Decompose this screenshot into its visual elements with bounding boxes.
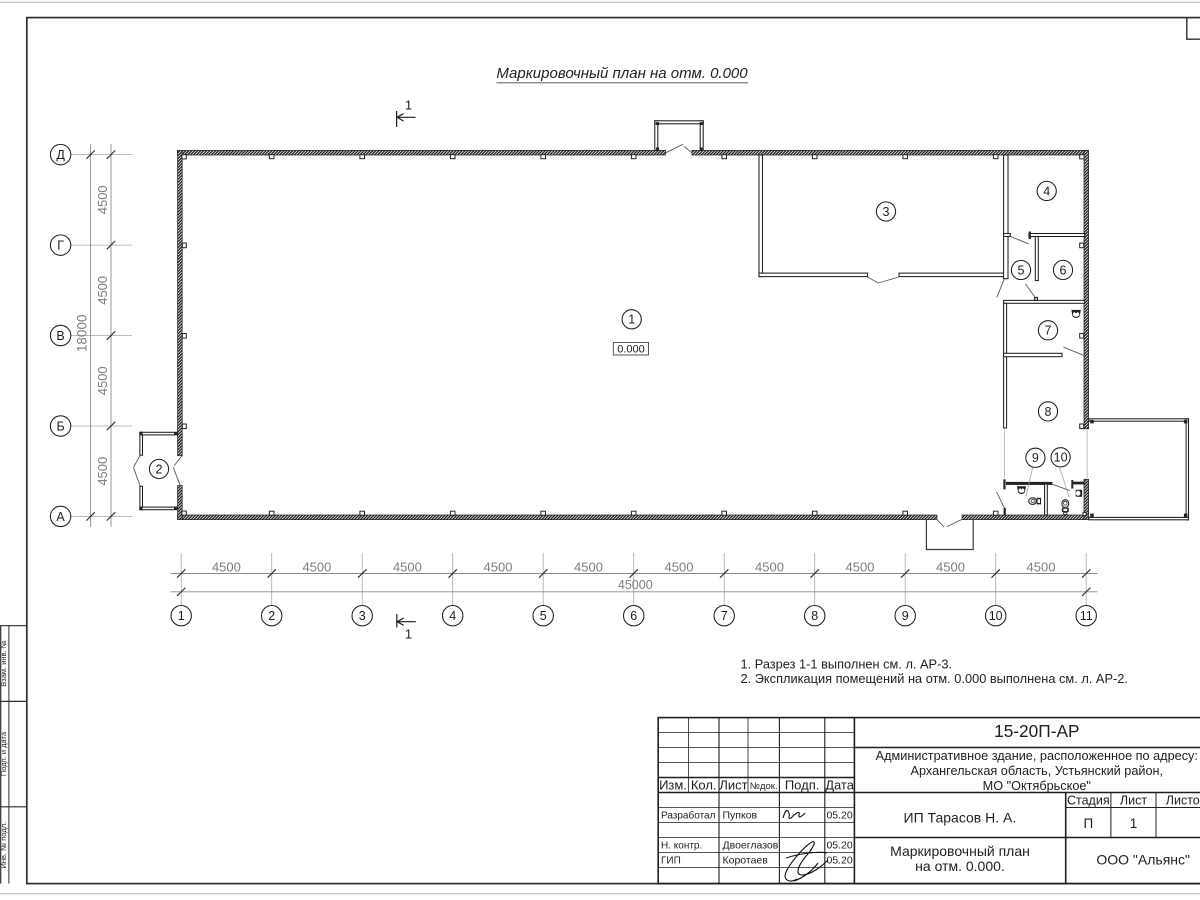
svg-text:Д: Д (56, 148, 65, 162)
svg-text:4500: 4500 (665, 559, 694, 574)
svg-text:Лист: Лист (1120, 794, 1147, 808)
svg-text:В: В (56, 329, 64, 343)
svg-text:7: 7 (721, 609, 728, 623)
svg-text:4500: 4500 (95, 366, 110, 395)
svg-text:4500: 4500 (574, 559, 603, 574)
svg-text:Подп.: Подп. (785, 777, 820, 792)
svg-text:Пупков: Пупков (723, 810, 758, 822)
svg-text:ГИП: ГИП (661, 856, 681, 867)
svg-text:Маркировочный план: Маркировочный план (890, 843, 1030, 859)
svg-text:3: 3 (359, 609, 366, 623)
svg-text:4500: 4500 (1027, 559, 1056, 574)
svg-text:Разработал: Разработал (661, 810, 716, 822)
svg-text:ООО "Альянс": ООО "Альянс" (1096, 851, 1190, 867)
svg-text:2: 2 (156, 462, 163, 476)
svg-text:4500: 4500 (95, 185, 110, 214)
svg-text:Кол.: Кол. (691, 777, 717, 792)
svg-text:4500: 4500 (936, 559, 965, 574)
svg-text:4500: 4500 (846, 559, 875, 574)
svg-text:Взам. инв. №: Взам. инв. № (0, 640, 8, 686)
svg-text:Инв. № подл.: Инв. № подл. (0, 822, 8, 869)
svg-text:0.000: 0.000 (617, 344, 645, 356)
svg-text:Административное здание, распо: Административное здание, расположенное п… (876, 749, 1198, 763)
svg-text:15-20П-АР: 15-20П-АР (994, 721, 1079, 741)
svg-text:МО "Октябрьское": МО "Октябрьское" (983, 779, 1091, 793)
svg-text:2: 2 (268, 609, 275, 623)
svg-text:05.20: 05.20 (826, 810, 852, 822)
svg-text:5: 5 (1018, 263, 1025, 277)
svg-text:П: П (1083, 816, 1093, 831)
svg-text:ИП Тарасов Н. А.: ИП Тарасов Н. А. (904, 809, 1017, 825)
svg-text:4500: 4500 (95, 276, 110, 305)
svg-text:1: 1 (628, 313, 635, 327)
svg-text:4500: 4500 (484, 559, 513, 574)
svg-text:7: 7 (1045, 324, 1052, 338)
svg-text:11: 11 (1080, 609, 1093, 623)
svg-text:6: 6 (1060, 263, 1067, 277)
svg-text:9: 9 (1032, 451, 1039, 465)
svg-text:Коротаев: Коротаев (723, 855, 769, 867)
svg-text:6: 6 (630, 609, 637, 623)
svg-text:05.20: 05.20 (826, 855, 852, 867)
svg-text:Г: Г (57, 239, 64, 253)
svg-text:4: 4 (449, 609, 456, 623)
svg-text:№док.: №док. (750, 781, 778, 792)
svg-text:Архангельская область, Устьянс: Архангельская область, Устьянский район, (911, 764, 1164, 778)
svg-text:10: 10 (989, 609, 1003, 623)
svg-text:Б: Б (56, 420, 64, 434)
svg-text:4500: 4500 (95, 457, 110, 486)
svg-text:Лист: Лист (719, 777, 747, 792)
svg-text:Подп. и дата: Подп. и дата (0, 731, 8, 776)
svg-text:8: 8 (1045, 405, 1052, 419)
svg-text:3: 3 (883, 205, 890, 219)
svg-text:5: 5 (540, 609, 547, 623)
svg-text:Изм.: Изм. (659, 777, 687, 792)
svg-text:Листов: Листов (1166, 794, 1200, 808)
svg-text:Дата: Дата (825, 777, 855, 792)
svg-text:4500: 4500 (302, 559, 331, 574)
svg-text:А: А (56, 510, 65, 524)
svg-text:Маркировочный план на отм. 0.0: Маркировочный план на отм. 0.000 (496, 65, 748, 82)
svg-text:4: 4 (1043, 184, 1050, 198)
svg-text:1: 1 (405, 98, 412, 113)
svg-text:1: 1 (178, 609, 185, 623)
svg-text:8: 8 (811, 609, 818, 623)
svg-text:2. Экспликация помещений на от: 2. Экспликация помещений на отм. 0.000 в… (741, 671, 1128, 686)
svg-text:4500: 4500 (393, 559, 422, 574)
svg-text:45000: 45000 (618, 578, 653, 592)
svg-text:05.20: 05.20 (826, 840, 852, 852)
svg-text:на отм. 0.000.: на отм. 0.000. (915, 858, 1005, 874)
svg-text:4500: 4500 (755, 559, 784, 574)
svg-text:Двоеглазов: Двоеглазов (723, 840, 779, 852)
svg-text:1. Разрез 1-1 выполнен см. л.: 1. Разрез 1-1 выполнен см. л. АР-3. (741, 656, 953, 671)
svg-text:Н. контр.: Н. контр. (661, 841, 702, 852)
svg-text:1: 1 (1130, 816, 1138, 831)
svg-text:4500: 4500 (212, 559, 241, 574)
svg-text:Стадия: Стадия (1067, 794, 1110, 808)
svg-text:18000: 18000 (75, 315, 90, 353)
svg-text:9: 9 (902, 609, 909, 623)
svg-text:1: 1 (405, 627, 412, 642)
svg-text:10: 10 (1054, 451, 1068, 465)
